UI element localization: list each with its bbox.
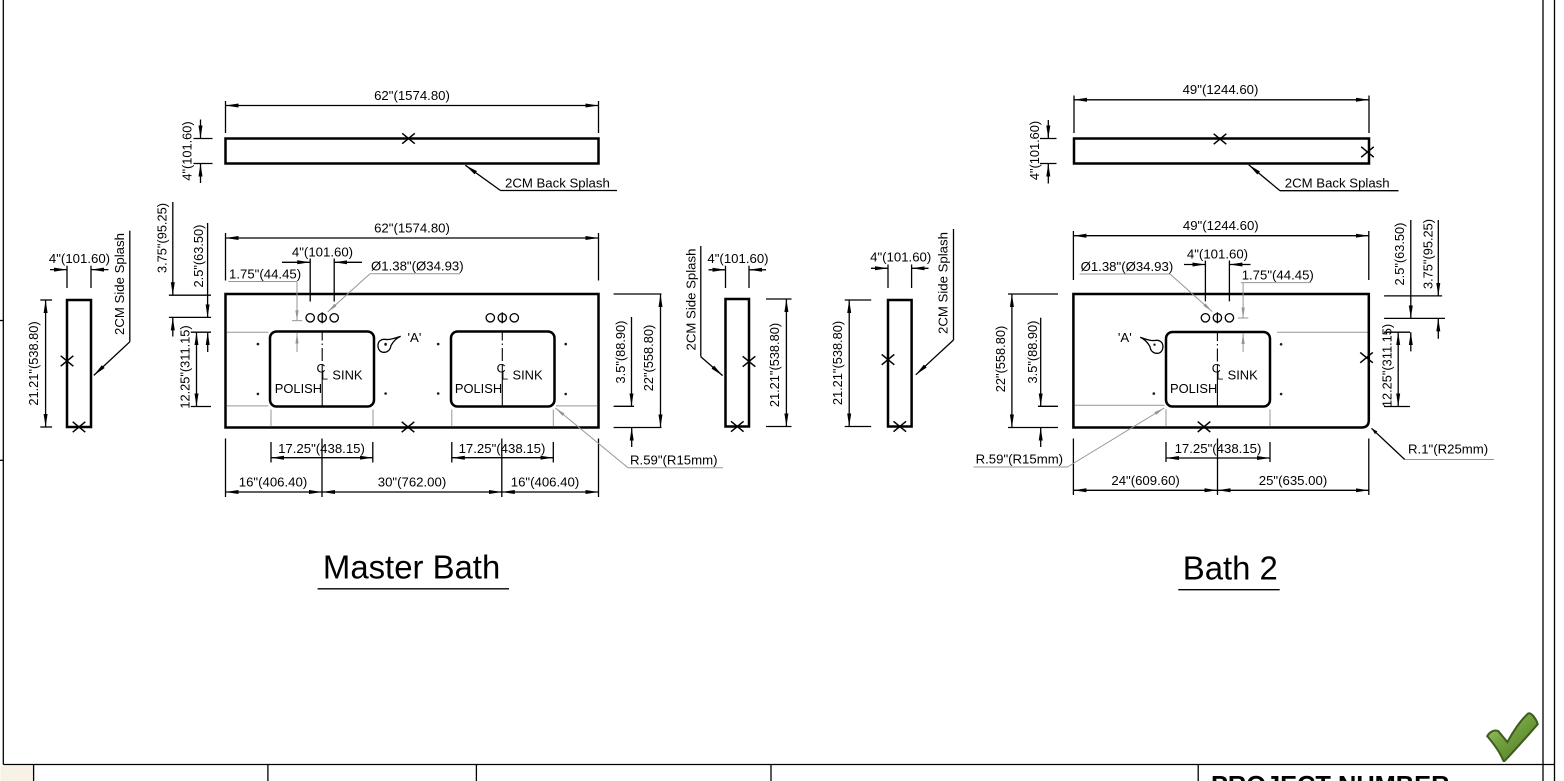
svg-text:21.21"(538.80): 21.21"(538.80) <box>26 321 41 405</box>
svg-text:21.21"(538.80): 21.21"(538.80) <box>767 323 782 407</box>
svg-text:4"(101.60): 4"(101.60) <box>870 250 931 265</box>
svg-text:'A': 'A' <box>1118 330 1132 345</box>
svg-text:4"(101.60): 4"(101.60) <box>707 251 768 266</box>
svg-text:4"(101.60): 4"(101.60) <box>180 121 195 180</box>
svg-text:22"(558.80): 22"(558.80) <box>641 325 656 391</box>
svg-text:R.1"(R25mm): R.1"(R25mm) <box>1408 442 1488 457</box>
svg-text:Ø1.38"(Ø34.93): Ø1.38"(Ø34.93) <box>1081 259 1174 274</box>
svg-text:4"(101.60): 4"(101.60) <box>1187 246 1248 261</box>
svg-text:2CM Back Splash: 2CM Back Splash <box>1285 176 1390 191</box>
svg-text:16"(406.40): 16"(406.40) <box>511 475 579 490</box>
svg-text:2.5"(63.50): 2.5"(63.50) <box>191 225 206 288</box>
svg-text:L: L <box>321 369 328 383</box>
svg-text:L: L <box>501 369 508 383</box>
svg-text:21.21"(538.80): 21.21"(538.80) <box>830 321 845 405</box>
svg-text:POLISH: POLISH <box>1170 381 1217 396</box>
svg-text:2CM Side Splash: 2CM Side Splash <box>683 249 698 351</box>
svg-text:2.5"(63.50): 2.5"(63.50) <box>1392 223 1407 286</box>
svg-text:62"(1574.80): 62"(1574.80) <box>374 88 450 103</box>
svg-text:'A': 'A' <box>408 330 422 345</box>
svg-text:22"(558.80): 22"(558.80) <box>993 326 1008 392</box>
svg-text:12.25"(311.15): 12.25"(311.15) <box>178 325 193 408</box>
svg-text:POLISH: POLISH <box>275 381 322 396</box>
svg-text:3.5"(88.90): 3.5"(88.90) <box>1025 321 1040 384</box>
svg-text:Ø1.38"(Ø34.93): Ø1.38"(Ø34.93) <box>371 259 464 274</box>
svg-text:3.75"(95.25): 3.75"(95.25) <box>1420 219 1435 289</box>
svg-text:SINK: SINK <box>1228 367 1258 382</box>
svg-text:12.25"(311.15): 12.25"(311.15) <box>1379 324 1394 407</box>
svg-text:R.59"(R15mm): R.59"(R15mm) <box>630 453 717 468</box>
svg-text:1.75"(44.45): 1.75"(44.45) <box>1242 267 1314 282</box>
svg-text:Master Bath: Master Bath <box>323 549 500 586</box>
svg-text:POLISH: POLISH <box>455 381 502 396</box>
svg-text:L: L <box>1216 369 1223 383</box>
svg-text:3.75"(95.25): 3.75"(95.25) <box>155 203 170 273</box>
svg-text:4"(101.60): 4"(101.60) <box>1027 121 1042 180</box>
svg-text:4"(101.60): 4"(101.60) <box>49 251 110 266</box>
svg-text:2CM Side Splash: 2CM Side Splash <box>936 232 951 334</box>
svg-text:SINK: SINK <box>513 367 543 382</box>
svg-text:R.59"(R15mm): R.59"(R15mm) <box>976 452 1063 467</box>
svg-text:30"(762.00): 30"(762.00) <box>378 475 446 490</box>
svg-text:2CM Back Splash: 2CM Back Splash <box>505 176 610 191</box>
svg-text:25"(635.00): 25"(635.00) <box>1259 473 1327 488</box>
svg-text:2CM Side Splash: 2CM Side Splash <box>112 233 127 335</box>
svg-text:49"(1244.60): 49"(1244.60) <box>1183 218 1259 233</box>
svg-text:49"(1244.60): 49"(1244.60) <box>1183 82 1259 97</box>
svg-text:4"(101.60): 4"(101.60) <box>292 245 353 260</box>
svg-text:SINK: SINK <box>332 367 362 382</box>
svg-text:PROJECT NUMBER: PROJECT NUMBER <box>1211 772 1449 781</box>
svg-text:3.5"(88.90): 3.5"(88.90) <box>613 321 628 384</box>
svg-text:16"(406.40): 16"(406.40) <box>239 475 307 490</box>
svg-text:62"(1574.80): 62"(1574.80) <box>374 220 450 235</box>
svg-text:1.75"(44.45): 1.75"(44.45) <box>229 267 301 282</box>
svg-text:Bath 2: Bath 2 <box>1183 550 1278 587</box>
svg-text:24"(609.60): 24"(609.60) <box>1111 473 1179 488</box>
